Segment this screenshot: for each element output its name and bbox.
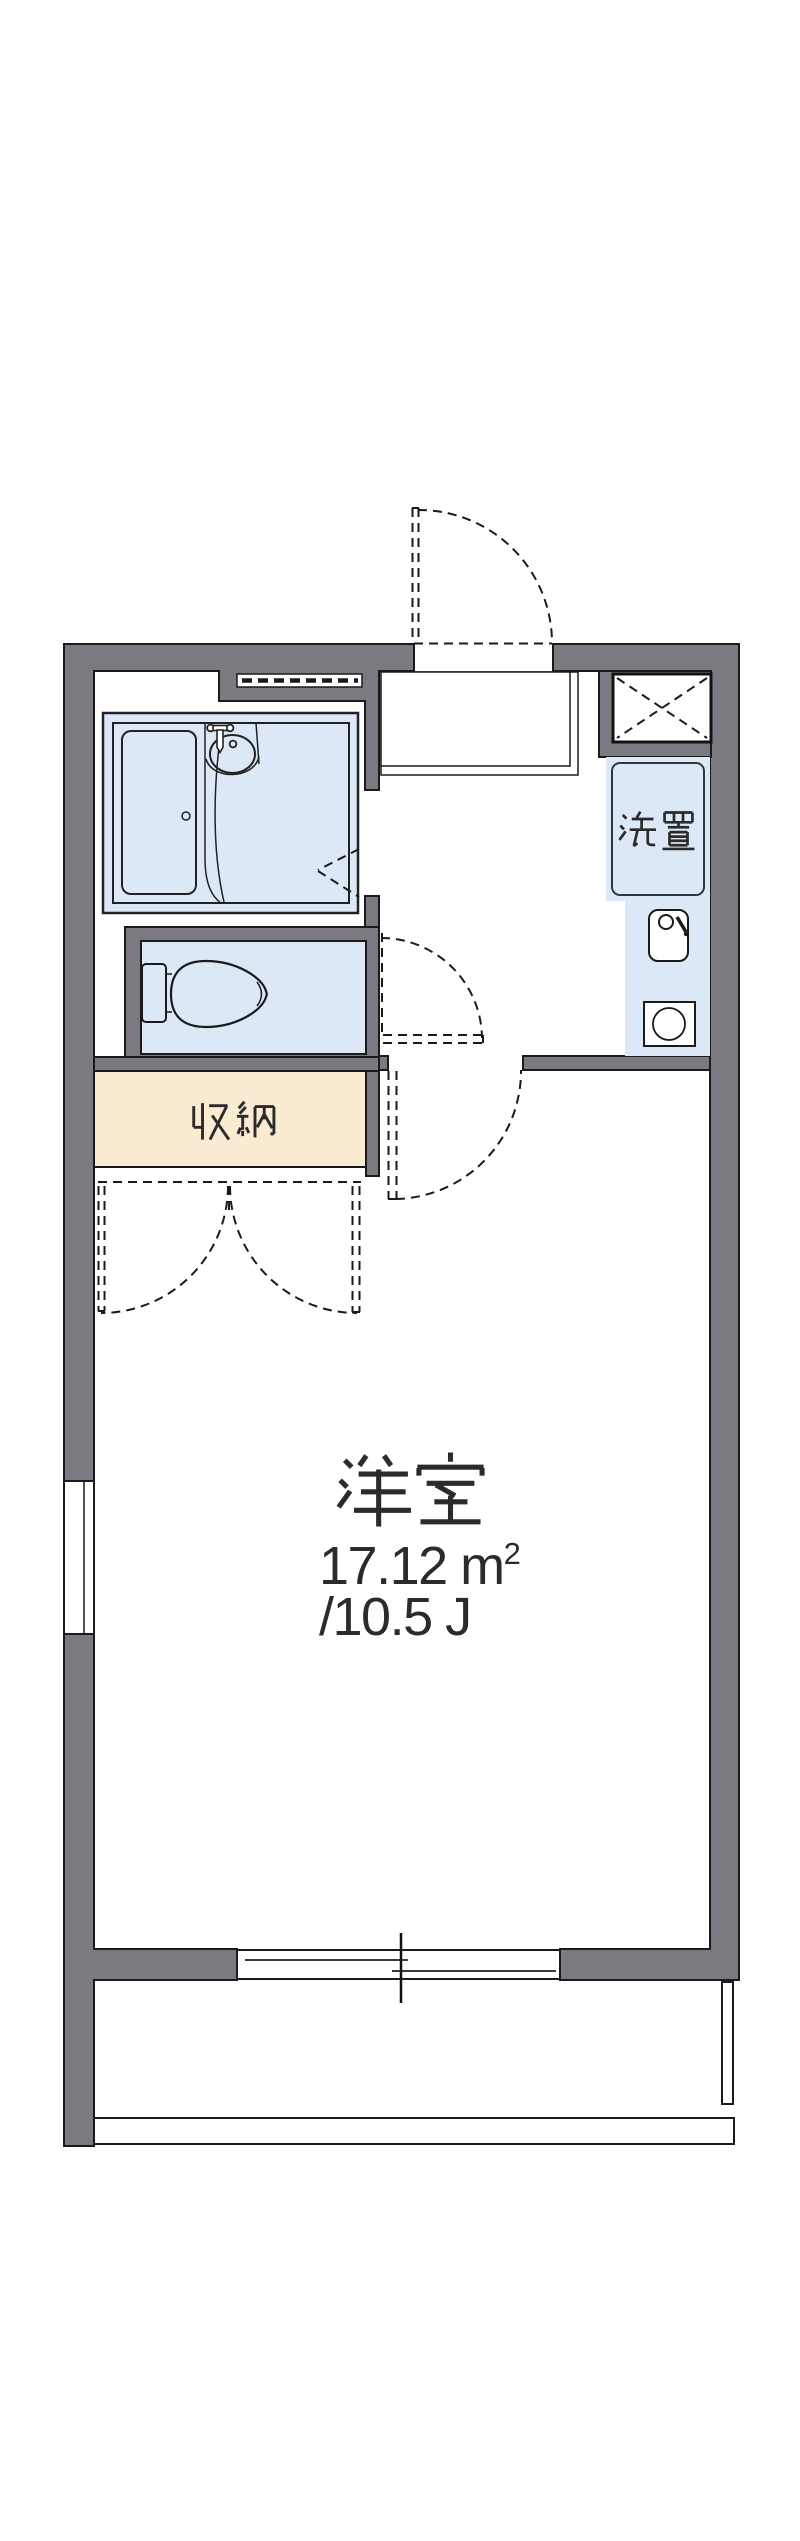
svg-text:/10.5 J: /10.5 J <box>319 1587 471 1647</box>
